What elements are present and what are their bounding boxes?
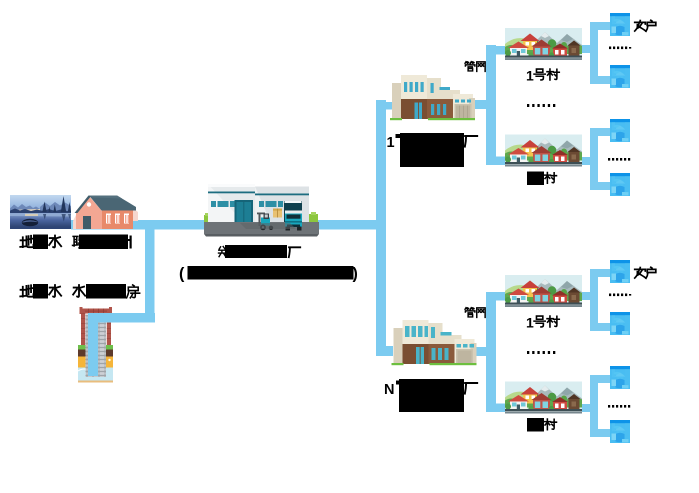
svg-text:1: 1	[526, 68, 534, 84]
svg-text:(: (	[179, 266, 185, 283]
svg-text:1: 1	[387, 135, 395, 151]
svg-text:): )	[353, 266, 358, 283]
svg-text:N: N	[384, 382, 394, 398]
svg-text:1: 1	[526, 315, 534, 331]
